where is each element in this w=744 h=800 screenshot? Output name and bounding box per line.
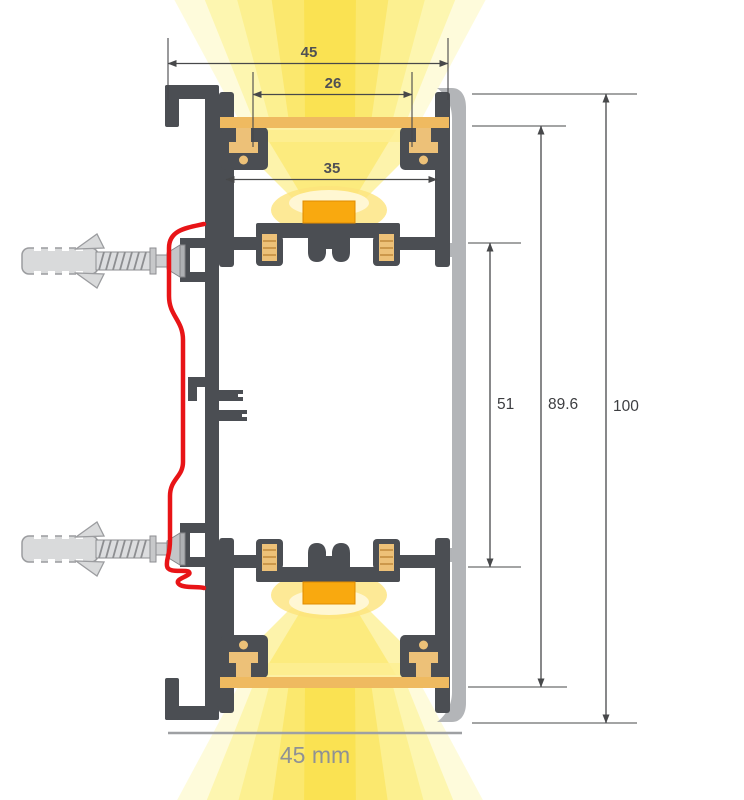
dim-label-45-top: 45 (301, 44, 318, 61)
dim-label-35: 35 (324, 160, 341, 177)
diagram-stage: 45 26 35 51 89.6 100 45 mm (0, 0, 744, 800)
profile-back-wall (188, 92, 247, 712)
dim-label-89-6: 89.6 (548, 396, 578, 413)
dim-label-45mm-bottom: 45 mm (280, 742, 350, 768)
dim-label-51: 51 (497, 396, 514, 413)
led-profile-cross-section-diagram: 45 26 35 51 89.6 100 45 mm (0, 0, 744, 800)
dim-label-26: 26 (325, 75, 342, 92)
dim-label-100: 100 (613, 398, 639, 415)
top-wall-anchor-screw (22, 234, 185, 288)
bottom-wall-anchor-screw (22, 522, 185, 576)
